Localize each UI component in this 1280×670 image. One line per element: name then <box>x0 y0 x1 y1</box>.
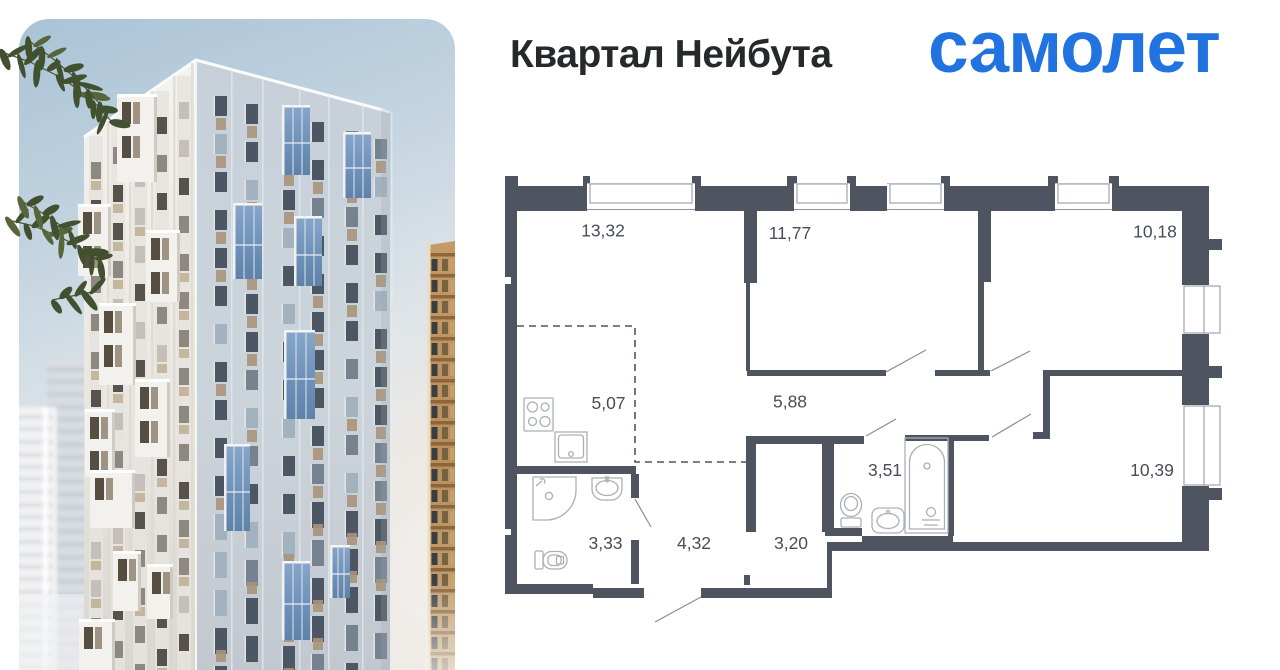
svg-text:3,51: 3,51 <box>868 460 902 480</box>
svg-text:3,33: 3,33 <box>588 533 622 553</box>
svg-text:4,32: 4,32 <box>677 533 711 553</box>
svg-text:10,18: 10,18 <box>1133 222 1177 242</box>
svg-text:5,88: 5,88 <box>773 392 807 412</box>
svg-text:3,20: 3,20 <box>774 533 808 553</box>
svg-text:13,32: 13,32 <box>581 221 625 241</box>
svg-text:10,39: 10,39 <box>1130 460 1174 480</box>
svg-text:11,77: 11,77 <box>769 223 812 243</box>
svg-text:5,07: 5,07 <box>591 393 625 413</box>
